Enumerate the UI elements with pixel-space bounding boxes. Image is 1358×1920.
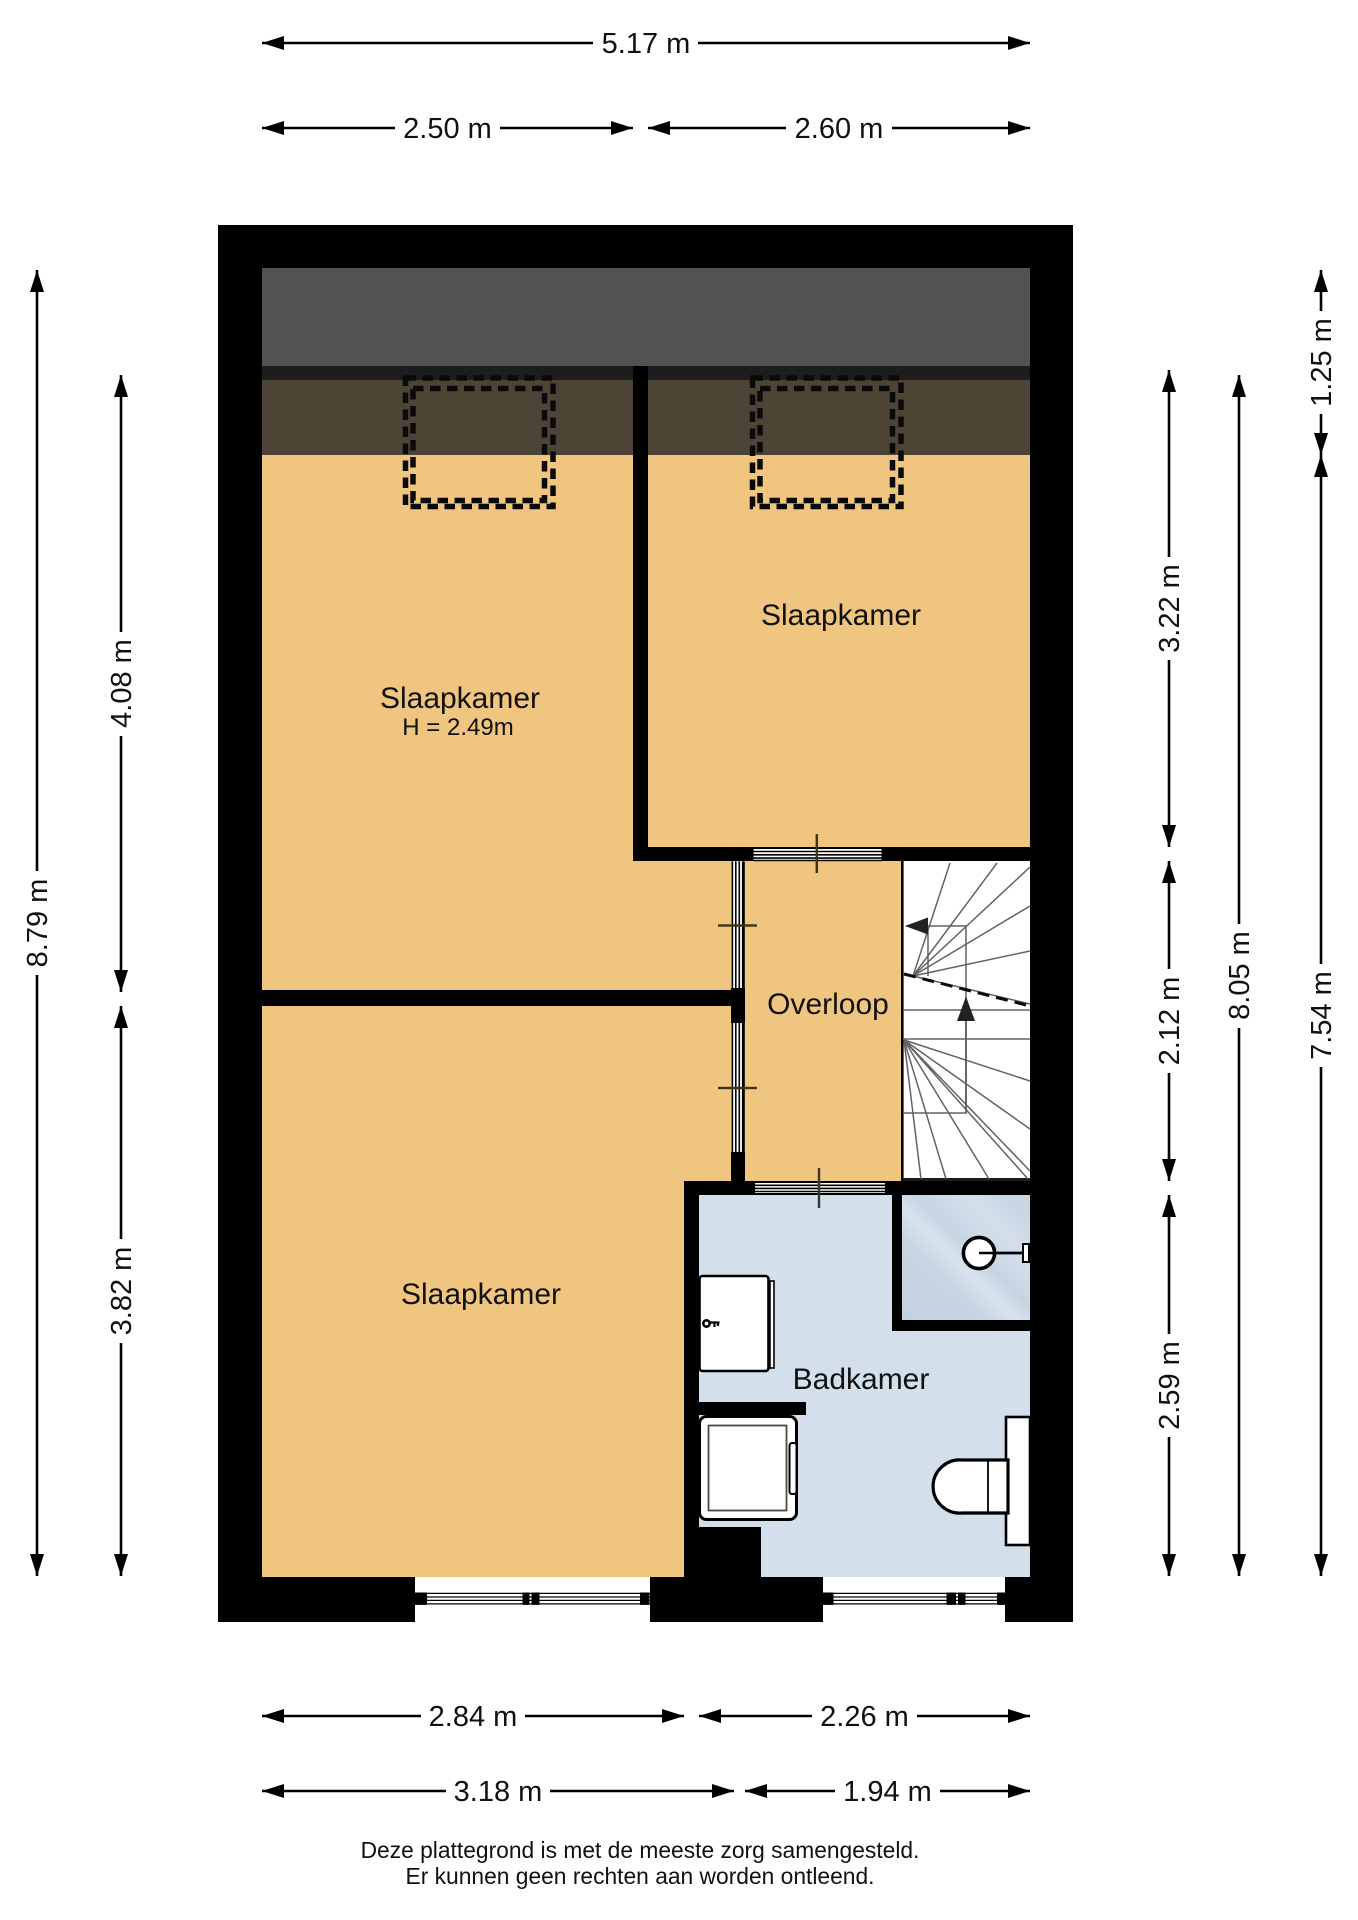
svg-text:2.59 m: 2.59 m [1154, 1341, 1186, 1430]
svg-text:Slaapkamer: Slaapkamer [401, 1278, 561, 1311]
svg-text:8.05 m: 8.05 m [1224, 931, 1256, 1020]
svg-text:1.94 m: 1.94 m [843, 1776, 932, 1808]
svg-text:Er kunnen geen rechten aan wor: Er kunnen geen rechten aan worden ontlee… [406, 1863, 875, 1889]
svg-text:7.54 m: 7.54 m [1306, 971, 1338, 1060]
svg-text:Badkamer: Badkamer [793, 1363, 930, 1396]
svg-text:H = 2.49m: H = 2.49m [402, 714, 513, 741]
svg-text:Slaapkamer: Slaapkamer [380, 682, 540, 715]
svg-text:4.08 m: 4.08 m [106, 639, 138, 728]
svg-text:2.12 m: 2.12 m [1154, 977, 1186, 1066]
svg-text:3.82 m: 3.82 m [106, 1247, 138, 1336]
svg-text:Slaapkamer: Slaapkamer [761, 599, 921, 632]
svg-text:5.17 m: 5.17 m [602, 28, 691, 60]
svg-text:1.25 m: 1.25 m [1306, 318, 1338, 407]
svg-text:3.22 m: 3.22 m [1154, 564, 1186, 653]
svg-text:2.60 m: 2.60 m [795, 113, 884, 145]
svg-text:Overloop: Overloop [767, 988, 889, 1021]
svg-text:Deze plattegrond is met de mee: Deze plattegrond is met de meeste zorg s… [361, 1837, 920, 1863]
svg-text:2.26 m: 2.26 m [820, 1701, 909, 1733]
svg-text:2.50 m: 2.50 m [403, 113, 492, 145]
svg-text:8.79 m: 8.79 m [22, 879, 54, 968]
svg-text:3.18 m: 3.18 m [454, 1776, 543, 1808]
svg-text:2.84 m: 2.84 m [429, 1701, 518, 1733]
